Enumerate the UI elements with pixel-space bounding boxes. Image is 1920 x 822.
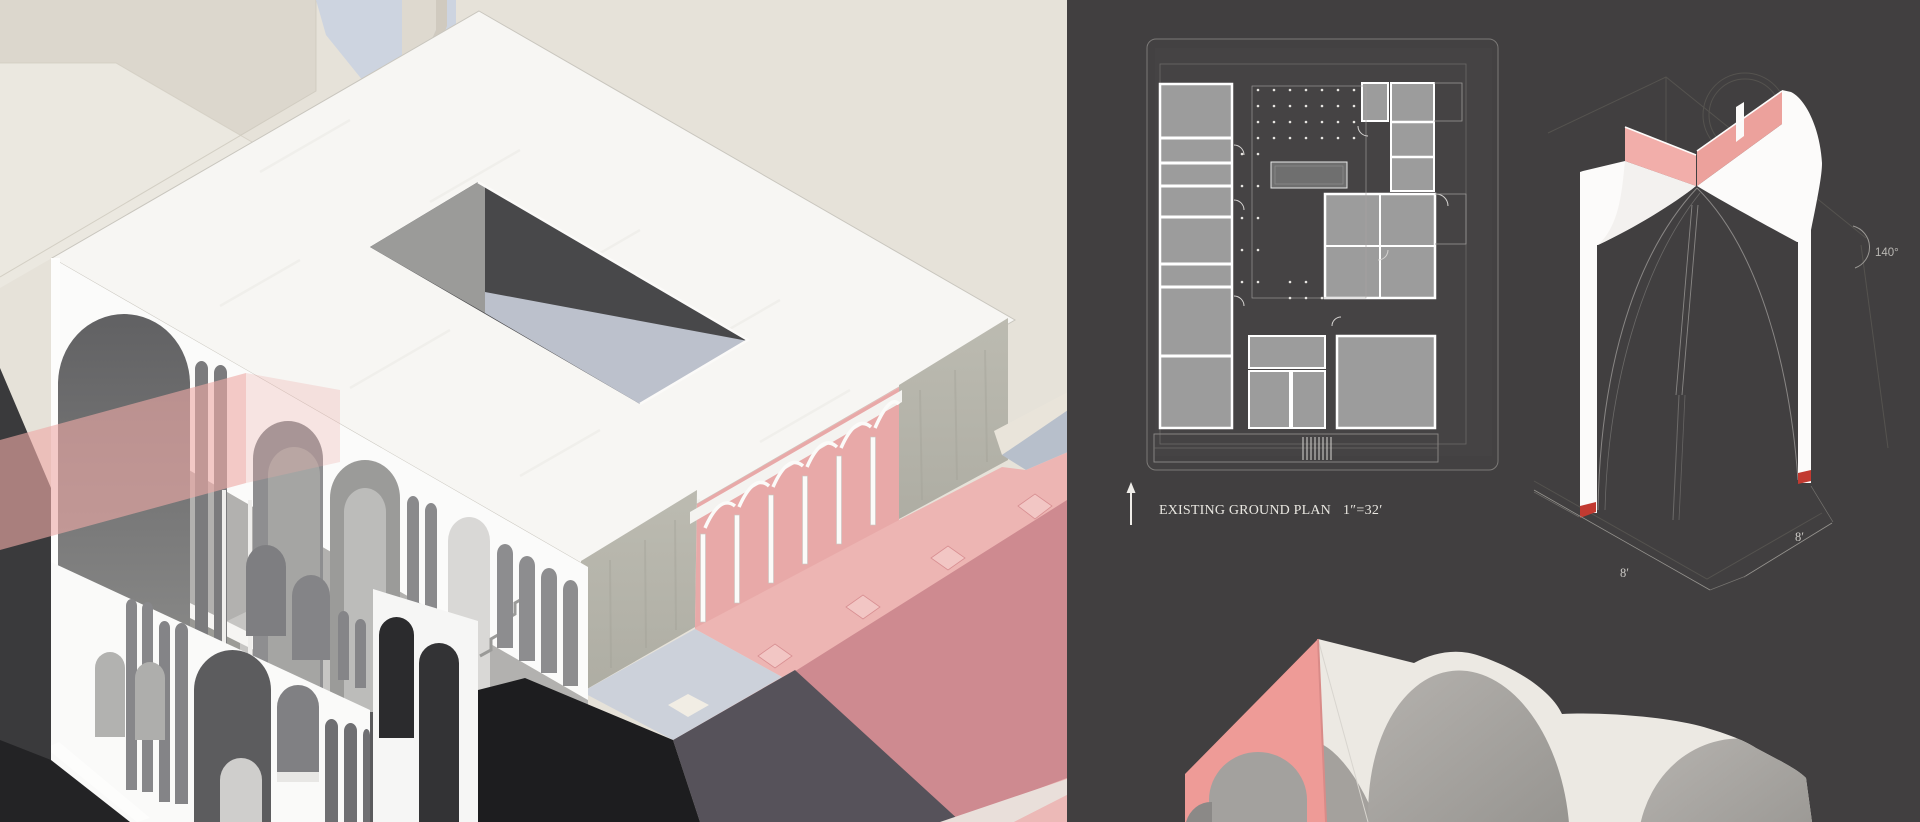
- svg-text:8′: 8′: [1620, 566, 1629, 580]
- svg-text:1″=32′: 1″=32′: [1343, 503, 1383, 518]
- svg-text:EXISTING GROUND PLAN: EXISTING GROUND PLAN: [1159, 503, 1331, 518]
- svg-text:140°: 140°: [1875, 247, 1899, 259]
- svg-text:8′: 8′: [1795, 530, 1804, 544]
